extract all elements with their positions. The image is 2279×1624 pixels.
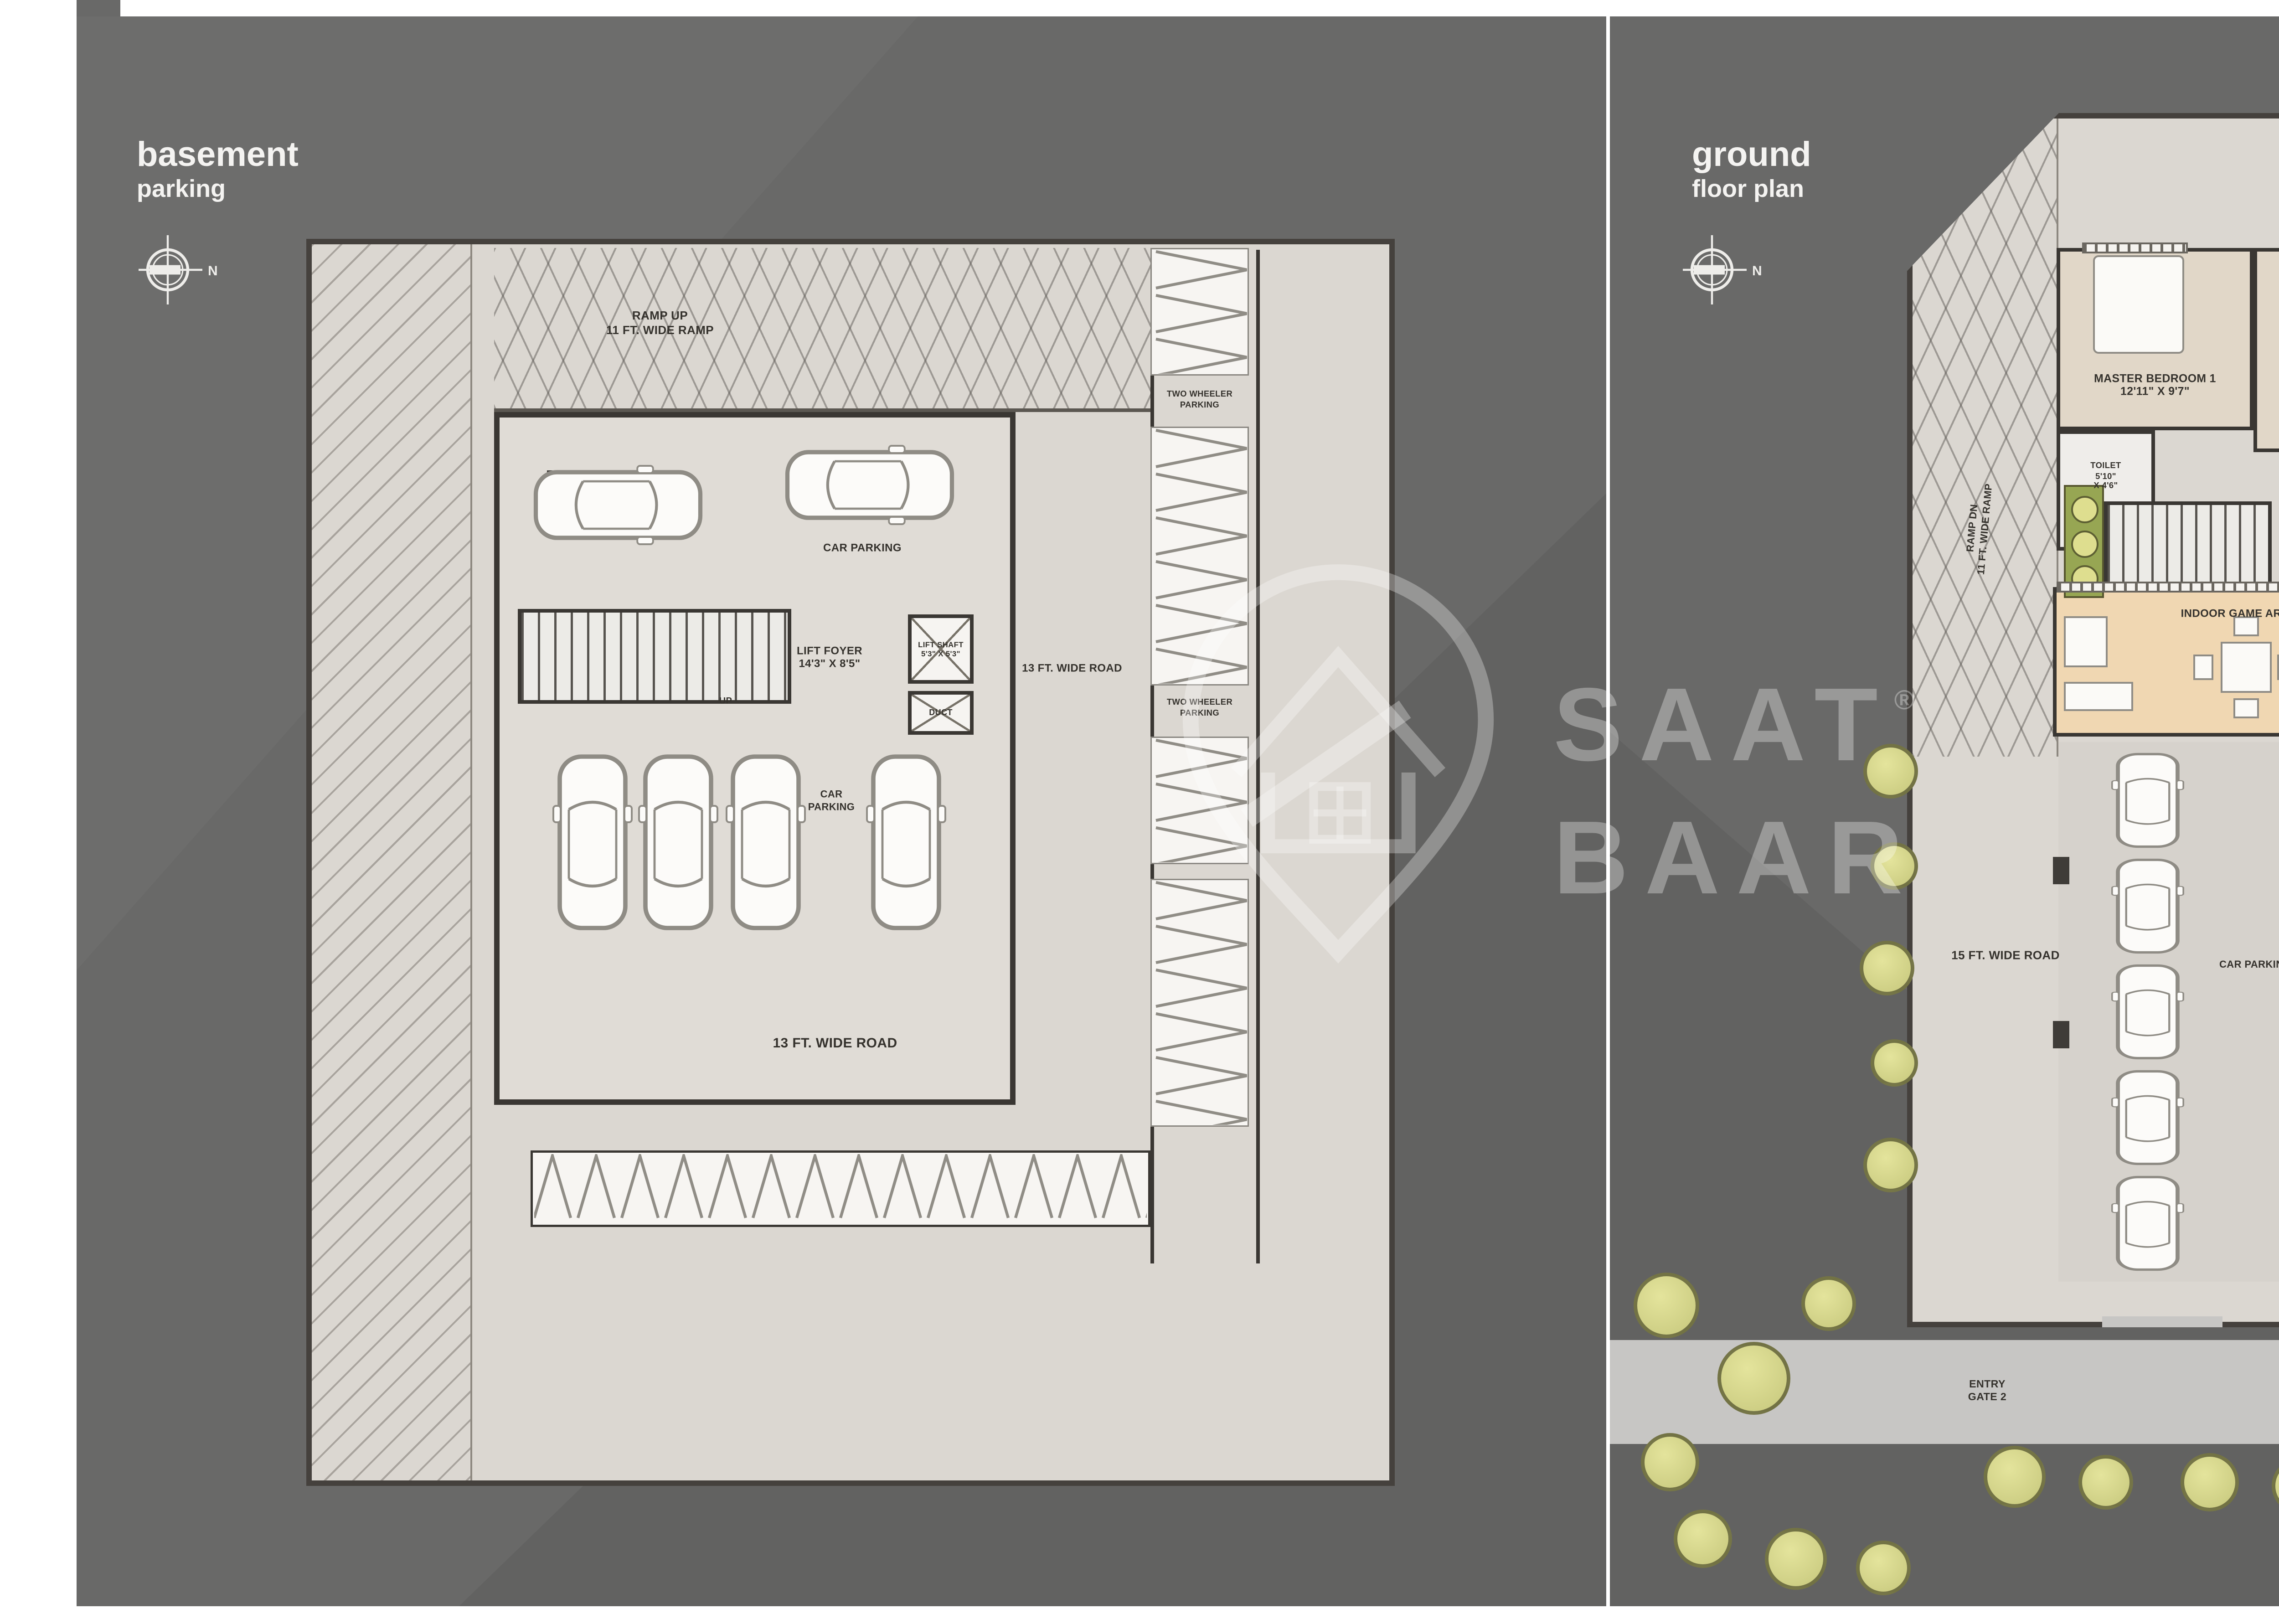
car-icon <box>782 445 957 525</box>
tree-icon <box>1801 1276 1856 1331</box>
car-icon <box>552 751 633 933</box>
two-wheeler-bay <box>1150 427 1249 686</box>
tree-icon <box>1856 1541 1911 1595</box>
two-wheeler-bay <box>1150 737 1249 864</box>
duct-label: DUCT <box>929 708 953 718</box>
car-parking-label: CAR PARKING <box>808 790 855 815</box>
window <box>2057 582 2279 593</box>
excavation-hatch <box>312 244 472 1480</box>
car-icon <box>2111 857 2184 955</box>
basement-staircase <box>518 609 791 704</box>
planter <box>2064 485 2104 598</box>
chair <box>2193 655 2213 680</box>
lift-shaft-label: LIFT SHAFT 5'3" X 5'3" <box>918 640 964 658</box>
tree-icon <box>2181 1453 2239 1511</box>
road-label: 13 FT. WIDE ROAD <box>1022 665 1122 678</box>
tree-icon <box>1674 1510 1732 1568</box>
master-bedroom-1-label: MASTER BEDROOM 1 12'11" X 9'7" <box>2094 373 2216 400</box>
car-icon <box>531 465 706 545</box>
game-table <box>2221 642 2272 693</box>
bed <box>2093 255 2184 354</box>
north-arrow-icon: N <box>137 233 224 306</box>
ground-title: ground <box>1692 139 1811 173</box>
road-label: 13 FT. WIDE ROAD <box>773 1035 897 1051</box>
tree-icon <box>1863 744 1918 799</box>
window <box>2082 242 2188 253</box>
ramp-up-area <box>494 248 1150 412</box>
column <box>2053 857 2069 884</box>
car-icon <box>2111 1068 2184 1167</box>
two-wheeler-label: TWO WHEELER PARKING <box>1167 389 1232 409</box>
car-parking-label: CAR PARKING <box>2219 960 2279 972</box>
tree-icon <box>2078 1455 2133 1510</box>
lift-foyer-label: LIFT FOYER 14'3" X 8'5" <box>797 647 862 673</box>
chair <box>2233 698 2259 718</box>
page: basement parking N RAMP UP 11 <box>0 0 2279 1624</box>
car-icon <box>726 751 806 933</box>
future-parking-strip <box>531 1150 1150 1227</box>
ground-subtitle: floor plan <box>1692 177 1804 201</box>
toilet-mb1-label: TOILET 5'10" X 4'6" <box>2090 461 2121 491</box>
svg-text:N: N <box>1752 263 1762 278</box>
corner-notch <box>77 0 120 16</box>
car-icon <box>2111 751 2184 850</box>
car-icon <box>2111 1174 2184 1273</box>
column <box>2053 1021 2069 1048</box>
tree-icon <box>1641 1433 1699 1491</box>
ramp-label: RAMP UP 11 FT. WIDE RAMP <box>606 310 714 339</box>
car-icon <box>638 751 718 933</box>
tree-icon <box>1634 1273 1699 1338</box>
up-label: UP <box>719 696 732 707</box>
basement-subtitle: parking <box>137 177 226 201</box>
tree-icon <box>1765 1528 1827 1590</box>
basement-title: basement <box>137 139 299 173</box>
car-icon <box>2111 963 2184 1061</box>
chair <box>2277 655 2279 680</box>
road-left-label: 15 FT. WIDE ROAD <box>1951 950 2060 964</box>
car-icon <box>866 751 946 933</box>
two-wheeler-bay <box>1150 248 1249 376</box>
guest-bedroom <box>2253 248 2279 452</box>
tree-icon <box>1717 1342 1790 1415</box>
tree-icon <box>1871 842 1918 890</box>
tree-icon <box>1871 1039 1918 1087</box>
ground-staircase <box>2104 501 2272 585</box>
indoor-game-label: INDOOR GAME AREA <box>2181 610 2279 623</box>
tree-icon <box>1984 1446 2046 1508</box>
sofa <box>2064 616 2108 667</box>
north-arrow-icon: N <box>1681 233 1769 306</box>
entry-gate-2-label: ENTRY GATE 2 <box>1968 1380 2006 1406</box>
two-wheeler-label: TWO WHEELER PARKING <box>1167 697 1232 717</box>
tree-icon <box>1863 1138 1918 1192</box>
svg-text:N: N <box>208 263 218 278</box>
tree-icon <box>1860 941 1914 995</box>
car-parking-label: CAR PARKING <box>823 544 902 557</box>
two-wheeler-bay <box>1150 879 1249 1127</box>
sofa <box>2064 682 2133 711</box>
main-road <box>1610 1340 2279 1444</box>
